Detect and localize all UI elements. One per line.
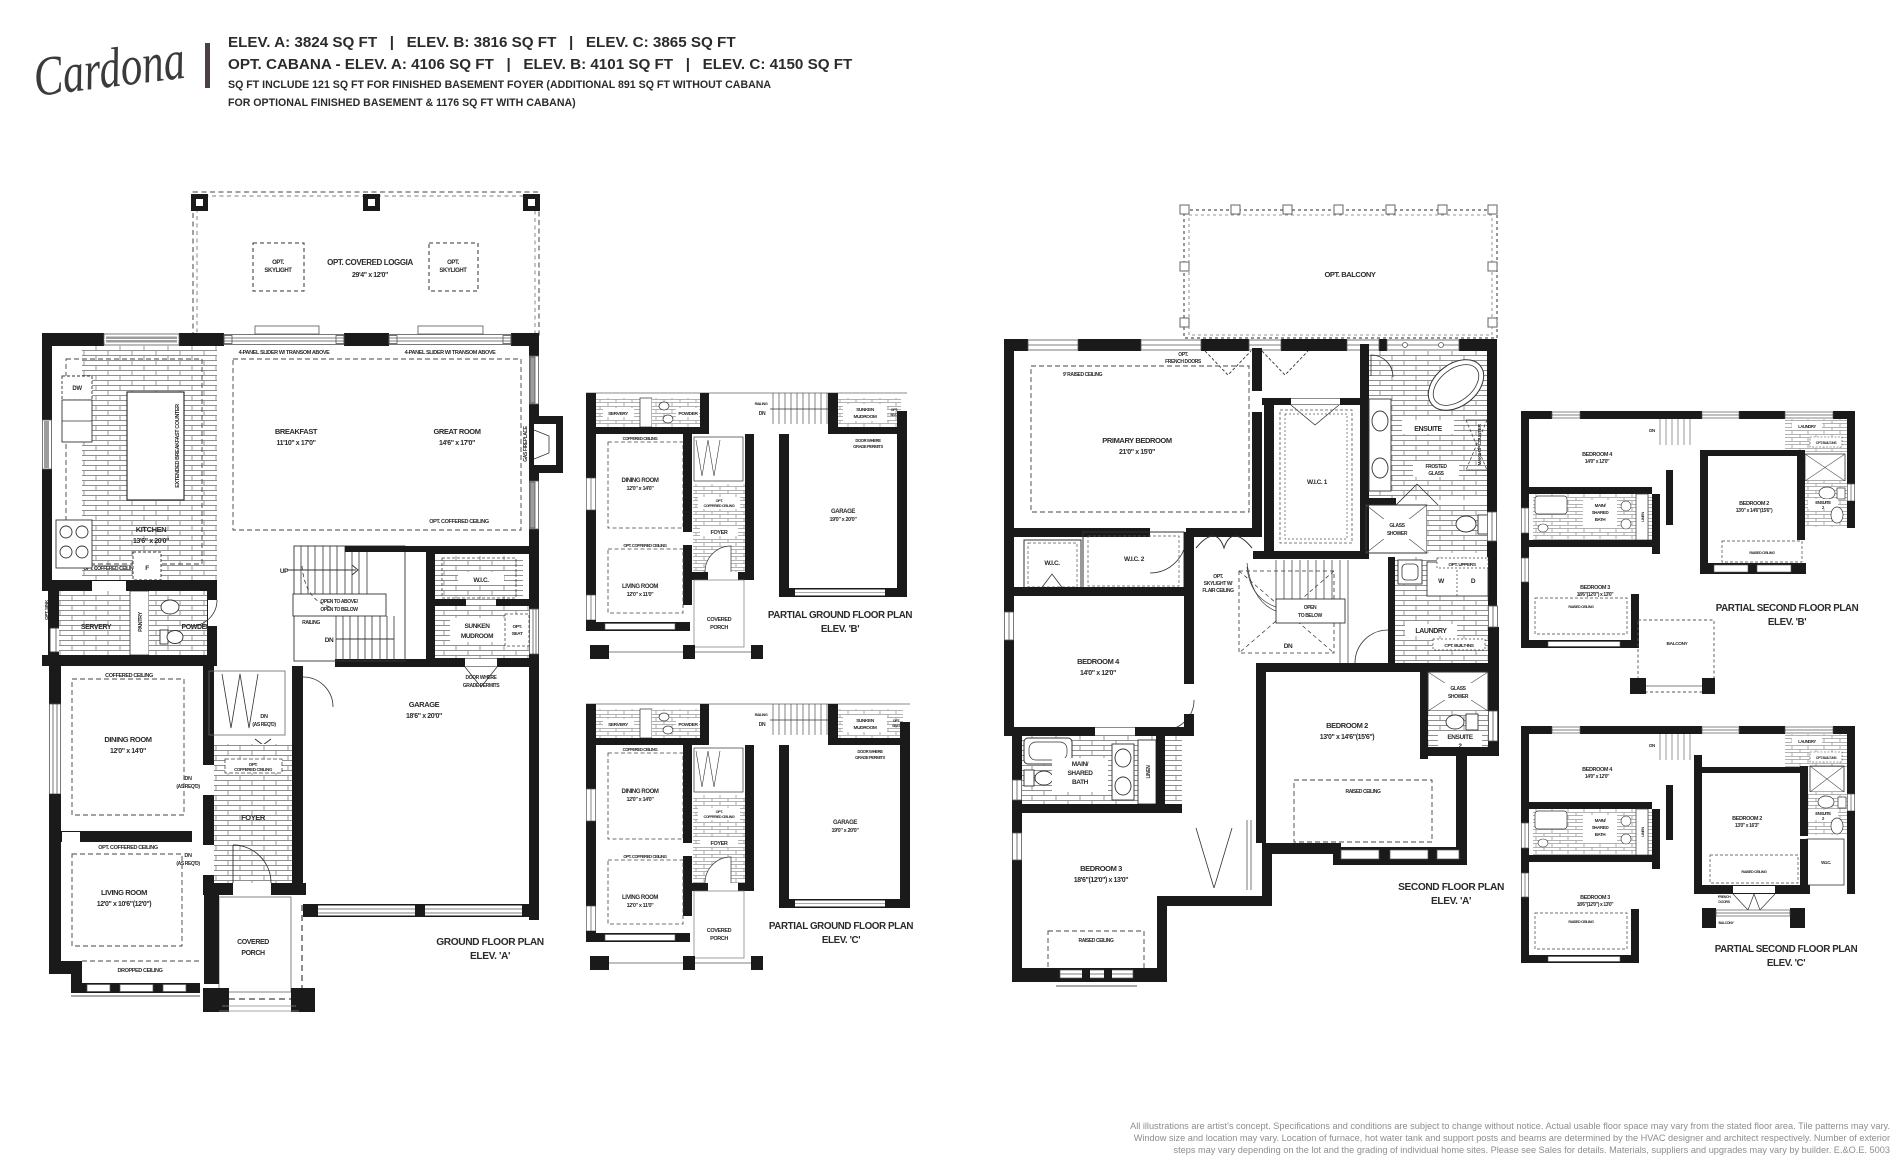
svg-text:BALCONY: BALCONY: [1667, 641, 1689, 647]
svg-text:GRADE PERMITS: GRADE PERMITS: [855, 755, 885, 760]
svg-text:19'0" x 20'0": 19'0" x 20'0": [831, 828, 859, 834]
svg-text:Window size and location may v: Window size and location may vary. Locat…: [1134, 1133, 1890, 1143]
svg-text:OPT. COFFERED CEILING: OPT. COFFERED CEILING: [429, 519, 489, 525]
svg-text:PORCH: PORCH: [241, 950, 265, 957]
svg-text:OPT. BALCONY: OPT. BALCONY: [1324, 270, 1375, 279]
svg-text:ELEV. 'C': ELEV. 'C': [822, 935, 860, 946]
svg-text:12'0" x 11'0": 12'0" x 11'0": [627, 903, 655, 909]
svg-text:OPT.: OPT.: [893, 719, 900, 723]
svg-text:SHARED: SHARED: [1592, 510, 1610, 515]
svg-text:POWDER: POWDER: [678, 411, 698, 417]
svg-text:OPT. CABANA - ELEV. A: 4106 SQ: OPT. CABANA - ELEV. A: 4106 SQ FT | ELEV…: [228, 56, 853, 73]
svg-text:BALCONY: BALCONY: [1719, 921, 1735, 925]
svg-text:DINING ROOM: DINING ROOM: [622, 478, 659, 484]
svg-text:POWDER: POWDER: [181, 624, 210, 631]
svg-text:LIVING ROOM: LIVING ROOM: [622, 895, 658, 901]
svg-text:DN: DN: [759, 722, 766, 728]
svg-text:18'6"(12'0") x 13'0": 18'6"(12'0") x 13'0": [1577, 592, 1615, 598]
svg-text:PARTIAL SECOND FLOOR PLAN: PARTIAL SECOND FLOOR PLAN: [1716, 603, 1859, 614]
svg-text:DN: DN: [1284, 643, 1293, 650]
svg-text:14'0" x 12'0": 14'0" x 12'0": [1080, 670, 1116, 677]
svg-text:MAIN/: MAIN/: [1072, 761, 1089, 768]
svg-text:OPT. UPPERS: OPT. UPPERS: [1448, 562, 1477, 568]
svg-text:ENSUITE: ENSUITE: [1414, 426, 1442, 433]
svg-text:ELEV. 'A': ELEV. 'A': [470, 951, 510, 962]
svg-text:OPT.: OPT.: [272, 260, 284, 266]
svg-text:4-PANEL SLIDER W/ TRANSOM ABOV: 4-PANEL SLIDER W/ TRANSOM ABOVE: [239, 350, 331, 356]
svg-text:LAUNDRY: LAUNDRY: [1798, 739, 1816, 744]
svg-text:SUNKEN: SUNKEN: [464, 623, 490, 630]
svg-text:ELEV. A: 3824 SQ FT | ELEV: ELEV. A: 3824 SQ FT | ELEV. B: 3816 SQ F…: [228, 34, 736, 51]
svg-text:GAS FIREPLACE: GAS FIREPLACE: [523, 425, 529, 461]
svg-text:MUDROOM: MUDROOM: [853, 725, 876, 731]
svg-text:OPT.: OPT.: [447, 260, 459, 266]
svg-text:SERVERY: SERVERY: [608, 722, 629, 728]
svg-text:DOOR WHERE: DOOR WHERE: [855, 438, 881, 443]
svg-text:OPEN TO ABOVE/: OPEN TO ABOVE/: [320, 599, 358, 605]
svg-text:SEAT: SEAT: [892, 724, 901, 728]
svg-text:GARAGE: GARAGE: [409, 700, 440, 709]
svg-text:DINING ROOM: DINING ROOM: [104, 735, 151, 744]
svg-text:BEDROOM 2: BEDROOM 2: [1732, 816, 1762, 822]
svg-text:FRENCH: FRENCH: [1718, 895, 1731, 899]
svg-text:COFFERED CEILING: COFFERED CEILING: [704, 815, 735, 819]
svg-text:BATH: BATH: [1595, 832, 1606, 837]
svg-text:LINEN: LINEN: [1641, 512, 1645, 522]
svg-text:14'0" x 12'0": 14'0" x 12'0": [1585, 774, 1610, 780]
svg-text:4-PANEL SLIDER W/ TRANSOM ABOV: 4-PANEL SLIDER W/ TRANSOM ABOVE: [405, 350, 497, 356]
svg-text:13'6" x 20'0": 13'6" x 20'0": [133, 538, 169, 545]
svg-text:BEDROOM 4: BEDROOM 4: [1582, 767, 1613, 773]
svg-text:DOORS: DOORS: [1718, 900, 1730, 904]
svg-text:18'6"(12'0") x 13'0": 18'6"(12'0") x 13'0": [1074, 877, 1129, 884]
svg-text:MAKE UP COUNTER: MAKE UP COUNTER: [1477, 424, 1483, 466]
svg-text:FOYER: FOYER: [241, 813, 266, 822]
svg-text:SKYLIGHT: SKYLIGHT: [439, 268, 467, 274]
svg-text:CPT. BUILT-INS: CPT. BUILT-INS: [1816, 441, 1837, 445]
svg-text:BEDROOM 3: BEDROOM 3: [1080, 864, 1122, 873]
svg-text:12'0" x 10'6"(12'0"): 12'0" x 10'6"(12'0"): [97, 901, 152, 908]
svg-text:SECOND FLOOR PLAN: SECOND FLOOR PLAN: [1398, 882, 1504, 893]
svg-text:FOYER: FOYER: [711, 530, 728, 536]
svg-text:13'0" x 14'6"(15'6"): 13'0" x 14'6"(15'6"): [1320, 734, 1375, 741]
svg-text:9' RAISED CEILING: 9' RAISED CEILING: [1063, 372, 1103, 378]
svg-text:OPT.: OPT.: [512, 624, 521, 630]
svg-text:FROSTED: FROSTED: [1425, 464, 1447, 470]
svg-text:OPT.: OPT.: [716, 810, 724, 814]
svg-text:SKYLIGHT: SKYLIGHT: [264, 268, 292, 274]
svg-text:LIVING ROOM: LIVING ROOM: [101, 888, 147, 897]
svg-text:OPT. COVERED LOGGIA: OPT. COVERED LOGGIA: [327, 258, 413, 267]
svg-text:DINING ROOM: DINING ROOM: [622, 789, 659, 795]
svg-text:BEDROOM 4: BEDROOM 4: [1582, 452, 1613, 458]
svg-text:SHOWER: SHOWER: [1448, 694, 1469, 700]
svg-text:EXTENDED BREAKFAST COUNTER: EXTENDED BREAKFAST COUNTER: [175, 404, 181, 488]
svg-text:TO BELOW: TO BELOW: [1298, 613, 1322, 619]
svg-text:MAIN/: MAIN/: [1595, 503, 1607, 508]
svg-text:BATH: BATH: [1072, 779, 1089, 786]
svg-text:OPT.: OPT.: [716, 499, 724, 503]
svg-text:BEDROOM 3: BEDROOM 3: [1580, 585, 1610, 591]
svg-text:RAILING: RAILING: [755, 402, 768, 406]
svg-text:18'6"(12'0") x 13'0": 18'6"(12'0") x 13'0": [1577, 902, 1615, 908]
svg-text:LIVING ROOM: LIVING ROOM: [622, 584, 658, 590]
svg-text:DOOR WHERE: DOOR WHERE: [857, 749, 883, 754]
svg-text:SKYLIGHT W/: SKYLIGHT W/: [1204, 581, 1233, 587]
svg-text:RAISED CEILING: RAISED CEILING: [1079, 938, 1114, 944]
svg-text:GARAGE: GARAGE: [833, 820, 857, 826]
svg-text:RAISED CEILING: RAISED CEILING: [1741, 870, 1767, 874]
svg-text:D: D: [1471, 578, 1476, 585]
svg-text:(AS REQ'D): (AS REQ'D): [176, 784, 200, 790]
svg-text:DN: DN: [184, 853, 192, 859]
svg-text:POWDER: POWDER: [678, 722, 698, 728]
svg-text:SQ FT INCLUDE 121 SQ FT FOR FI: SQ FT INCLUDE 121 SQ FT FOR FINISHED BAS…: [228, 79, 771, 91]
svg-text:OPT. SINK: OPT. SINK: [44, 599, 50, 620]
svg-text:GLASS: GLASS: [1389, 523, 1405, 529]
svg-text:DN: DN: [1649, 428, 1655, 433]
svg-text:BREAKFAST: BREAKFAST: [275, 427, 318, 436]
svg-text:GLASS: GLASS: [1428, 471, 1444, 477]
svg-text:COFFERED CEILING: COFFERED CEILING: [623, 747, 658, 752]
svg-text:18'6" x 20'0": 18'6" x 20'0": [406, 713, 442, 720]
svg-text:RAISED CEILING: RAISED CEILING: [1346, 789, 1381, 795]
svg-text:W.I.C.: W.I.C.: [1044, 560, 1060, 567]
svg-text:GREAT ROOM: GREAT ROOM: [433, 427, 480, 436]
svg-text:FOR OPTIONAL FINISHED BASEMENT: FOR OPTIONAL FINISHED BASEMENT & 1176 SQ…: [228, 97, 576, 109]
svg-text:LAUNDRY: LAUNDRY: [1415, 628, 1447, 635]
svg-text:GARAGE: GARAGE: [831, 509, 855, 515]
svg-text:LINEN: LINEN: [1146, 765, 1152, 779]
svg-text:RAISED CEILING: RAISED CEILING: [1568, 605, 1594, 609]
svg-text:ELEV. 'A': ELEV. 'A': [1431, 896, 1471, 907]
svg-text:19'0" x 20'0": 19'0" x 20'0": [829, 517, 857, 523]
svg-text:FRENCH DOORS: FRENCH DOORS: [1165, 359, 1202, 365]
svg-text:CPT. BUILT-INS: CPT. BUILT-INS: [1816, 756, 1837, 760]
svg-text:PORCH: PORCH: [710, 936, 728, 942]
svg-text:OPT. COFFERED CEILING: OPT. COFFERED CEILING: [623, 854, 666, 859]
svg-text:LAUNDRY: LAUNDRY: [1798, 424, 1816, 429]
svg-text:(AS REQ'D): (AS REQ'D): [252, 722, 276, 728]
svg-text:W.I.C. 1: W.I.C. 1: [1307, 479, 1328, 486]
svg-text:OPT. COFFERED CEILING: OPT. COFFERED CEILING: [623, 543, 666, 548]
svg-text:BEDROOM 2: BEDROOM 2: [1326, 721, 1368, 730]
svg-text:BEDROOM 3: BEDROOM 3: [1580, 895, 1610, 901]
svg-text:ELEV. 'B': ELEV. 'B': [821, 624, 859, 635]
svg-text:DN: DN: [325, 637, 334, 644]
svg-text:RAISED CEILING: RAISED CEILING: [1568, 920, 1594, 924]
svg-text:W.I.C.: W.I.C.: [473, 577, 489, 584]
svg-text:UP: UP: [280, 568, 289, 575]
svg-text:OPT. COFFERED CEILING: OPT. COFFERED CEILING: [98, 845, 158, 851]
svg-text:COVERED: COVERED: [707, 928, 732, 934]
svg-text:steps may vary depending on th: steps may vary depending on the lot and …: [1173, 1145, 1890, 1155]
svg-text:GRADE PERMITS: GRADE PERMITS: [463, 683, 501, 689]
svg-text:ELEV. 'B': ELEV. 'B': [1768, 617, 1806, 628]
svg-text:RAISED CEILING: RAISED CEILING: [1749, 551, 1775, 555]
svg-text:12'0" x 11'0": 12'0" x 11'0": [627, 592, 655, 598]
svg-text:PRIMARY BEDROOM: PRIMARY BEDROOM: [1102, 436, 1172, 445]
svg-text:PARTIAL GROUND FLOOR PLAN: PARTIAL GROUND FLOOR PLAN: [768, 610, 913, 621]
svg-text:SUNKEN: SUNKEN: [856, 718, 875, 724]
svg-text:BATH: BATH: [1595, 517, 1606, 522]
svg-text:COFFERED CEILING: COFFERED CEILING: [234, 767, 273, 772]
svg-text:COVERED: COVERED: [237, 939, 269, 946]
svg-text:OPEN: OPEN: [1304, 605, 1317, 611]
svg-text:14'6" x 17'0": 14'6" x 17'0": [439, 440, 475, 447]
svg-text:MAIN/: MAIN/: [1595, 818, 1607, 823]
svg-text:OPT.: OPT.: [1213, 574, 1224, 580]
svg-text:PARTIAL SECOND FLOOR PLAN: PARTIAL SECOND FLOOR PLAN: [1715, 944, 1858, 955]
svg-text:GROUND FLOOR PLAN: GROUND FLOOR PLAN: [436, 937, 544, 948]
svg-text:SERVERY: SERVERY: [608, 411, 629, 417]
svg-text:PORCH: PORCH: [710, 625, 728, 631]
svg-text:SHOWER: SHOWER: [1387, 531, 1408, 537]
svg-text:29'4" x 12'0": 29'4" x 12'0": [352, 272, 388, 279]
svg-text:CPT. BUILT-INS: CPT. BUILT-INS: [1444, 643, 1474, 649]
svg-text:RAILING: RAILING: [755, 713, 768, 717]
svg-text:(AS REQ'D): (AS REQ'D): [176, 861, 200, 867]
svg-text:GLASS: GLASS: [1450, 686, 1466, 692]
svg-text:DN: DN: [184, 776, 192, 782]
svg-text:DN: DN: [260, 714, 268, 720]
svg-text:GRADE PERMITS: GRADE PERMITS: [853, 444, 883, 449]
svg-text:DW: DW: [72, 386, 82, 392]
svg-text:W.I.C. 2: W.I.C. 2: [1124, 556, 1145, 563]
svg-text:All illustrations are artist's: All illustrations are artist's concept. …: [1130, 1121, 1890, 1131]
svg-text:SHARED: SHARED: [1067, 770, 1093, 777]
svg-text:LINEN: LINEN: [1641, 827, 1645, 837]
svg-text:KITCHEN: KITCHEN: [136, 525, 167, 534]
svg-text:BEDROOM 4: BEDROOM 4: [1077, 657, 1120, 666]
svg-text:PANTRY: PANTRY: [138, 611, 144, 631]
svg-text:DN: DN: [759, 411, 766, 417]
svg-text:OPEN TO BELOW: OPEN TO BELOW: [320, 607, 358, 613]
svg-text:COFFERED CEILING: COFFERED CEILING: [105, 673, 153, 679]
svg-text:RAILING: RAILING: [302, 620, 320, 626]
svg-text:13'0" x 14'6"(15'6"): 13'0" x 14'6"(15'6"): [1736, 508, 1773, 514]
svg-text:PARTIAL GROUND FLOOR PLAN: PARTIAL GROUND FLOOR PLAN: [769, 921, 914, 932]
svg-text:ENSUITE: ENSUITE: [1447, 734, 1473, 741]
svg-text:14'0" x 12'0": 14'0" x 12'0": [1585, 459, 1610, 465]
svg-text:MUDROOM: MUDROOM: [853, 414, 876, 420]
svg-text:12'0" x 14'0": 12'0" x 14'0": [626, 797, 654, 803]
svg-text:DN: DN: [1649, 743, 1655, 748]
svg-text:DROPPED CEILING: DROPPED CEILING: [117, 968, 162, 974]
svg-text:13'0" x 16'3": 13'0" x 16'3": [1735, 823, 1760, 829]
svg-text:SHARED: SHARED: [1592, 825, 1610, 830]
svg-text:OPT.: OPT.: [1178, 352, 1189, 358]
svg-text:12'0" x 14'0": 12'0" x 14'0": [626, 486, 654, 492]
svg-text:DOOR WHERE: DOOR WHERE: [465, 675, 497, 681]
svg-text:BEDROOM 2: BEDROOM 2: [1739, 501, 1769, 507]
svg-text:F: F: [145, 565, 149, 572]
svg-text:FLAIR CEILING: FLAIR CEILING: [1202, 588, 1234, 594]
svg-text:W.I.C.: W.I.C.: [1821, 860, 1831, 865]
svg-text:MUDROOM: MUDROOM: [461, 633, 493, 640]
svg-text:12'0" x 14'0": 12'0" x 14'0": [110, 748, 146, 755]
svg-text:ELEV. 'C': ELEV. 'C': [1767, 958, 1805, 969]
svg-text:SEAT: SEAT: [512, 631, 523, 637]
svg-text:11'10" x 17'0": 11'10" x 17'0": [276, 440, 315, 447]
svg-text:SERVERY: SERVERY: [81, 624, 112, 631]
svg-text:FOYER: FOYER: [711, 841, 728, 847]
svg-text:COVERED: COVERED: [707, 617, 732, 623]
svg-text:COFFERED CEILING: COFFERED CEILING: [623, 436, 658, 441]
svg-text:COFFERED CEILING: COFFERED CEILING: [704, 504, 735, 508]
svg-text:SUNKEN: SUNKEN: [856, 407, 875, 413]
svg-text:21'0" x 15'0": 21'0" x 15'0": [1119, 449, 1155, 456]
